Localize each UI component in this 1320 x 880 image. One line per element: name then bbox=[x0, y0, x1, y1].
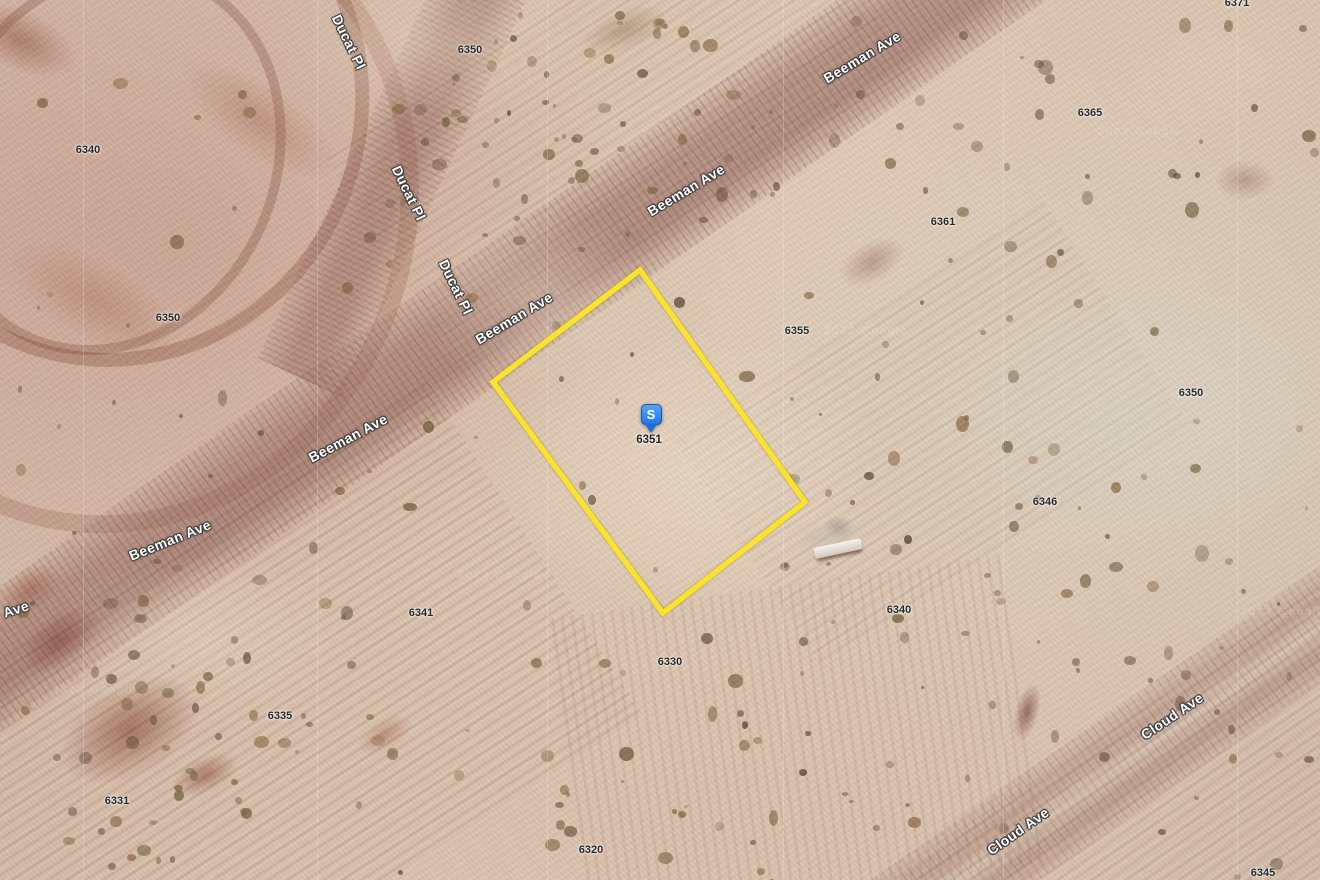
terrain-arcs bbox=[0, 0, 1320, 880]
parcel-number-6320: 6320 bbox=[579, 844, 603, 856]
parcel-number-6361: 6361 bbox=[931, 216, 955, 228]
street-label-cloud-ave: Cloud Ave bbox=[1138, 689, 1206, 742]
imagery-watermark: 2023 Google bbox=[824, 325, 909, 337]
parcel-number-6335: 6335 bbox=[268, 710, 292, 722]
vegetation-speckles bbox=[0, 0, 1320, 880]
marker-tail bbox=[645, 424, 657, 433]
small-building bbox=[813, 538, 862, 559]
parcel-number-6346: 6346 bbox=[1033, 496, 1057, 508]
imagery-watermark: 2023 Google bbox=[458, 569, 543, 581]
street-label-beeman-ave: Beeman Ave bbox=[821, 28, 904, 87]
parcel-number-6365: 6365 bbox=[1078, 107, 1102, 119]
street-label-ave: Ave bbox=[1, 597, 31, 620]
parcel-marker-pin[interactable]: S bbox=[639, 404, 663, 433]
beeman-ave-road bbox=[0, 0, 1201, 867]
marker-s-icon: S bbox=[641, 404, 662, 425]
parcel-number-6355: 6355 bbox=[785, 325, 809, 337]
street-label-beeman-ave: Beeman Ave bbox=[645, 161, 728, 220]
parcel-outline-overlay bbox=[0, 0, 1320, 880]
marker-parcel-number: 6351 bbox=[636, 434, 662, 446]
parcel-number-6350: 6350 bbox=[458, 44, 482, 56]
street-label-ducat-pl: Ducat Pl bbox=[436, 257, 476, 317]
street-label-beeman-ave: Beeman Ave bbox=[473, 289, 556, 348]
parcel-number-6371: 6371 bbox=[1225, 0, 1249, 9]
street-label-ducat-pl: Ducat Pl bbox=[329, 12, 369, 72]
street-label-ducat-pl: Ducat Pl bbox=[389, 163, 429, 223]
street-label-beeman-ave: Beeman Ave bbox=[306, 411, 390, 466]
parcel-number-6340: 6340 bbox=[887, 604, 911, 616]
parcel-number-6340: 6340 bbox=[76, 144, 100, 156]
parcel-number-6341: 6341 bbox=[409, 607, 433, 619]
street-label-beeman-ave: Beeman Ave bbox=[127, 516, 214, 563]
parcel-boundary-lines bbox=[0, 0, 1320, 880]
selected-parcel-outline[interactable] bbox=[493, 270, 805, 613]
ducat-pl-road bbox=[258, 0, 544, 397]
parcel-number-6330: 6330 bbox=[658, 656, 682, 668]
imagery-watermark: 2023 Google bbox=[1098, 126, 1183, 138]
terrain-texture bbox=[0, 0, 1320, 880]
street-label-cloud-ave: Cloud Ave bbox=[984, 804, 1052, 858]
cloud-ave-road bbox=[763, 508, 1320, 880]
parcel-number-6350: 6350 bbox=[1179, 387, 1203, 399]
parcel-number-6345: 6345 bbox=[1251, 867, 1275, 879]
parcel-number-6331: 6331 bbox=[105, 795, 129, 807]
marker-label: S bbox=[647, 408, 656, 421]
parcel-number-6350: 6350 bbox=[156, 312, 180, 324]
imagery-watermark: 2023 Google bbox=[53, 684, 138, 696]
image-grain bbox=[0, 0, 1320, 880]
map-labels: Ducat PlDucat PlDucat PlBeeman AveBeeman… bbox=[0, 0, 1320, 880]
satellite-map-canvas[interactable]: Ducat PlDucat PlDucat PlBeeman AveBeeman… bbox=[0, 0, 1320, 880]
imagery-watermark: 2023 Google bbox=[1241, 606, 1320, 618]
